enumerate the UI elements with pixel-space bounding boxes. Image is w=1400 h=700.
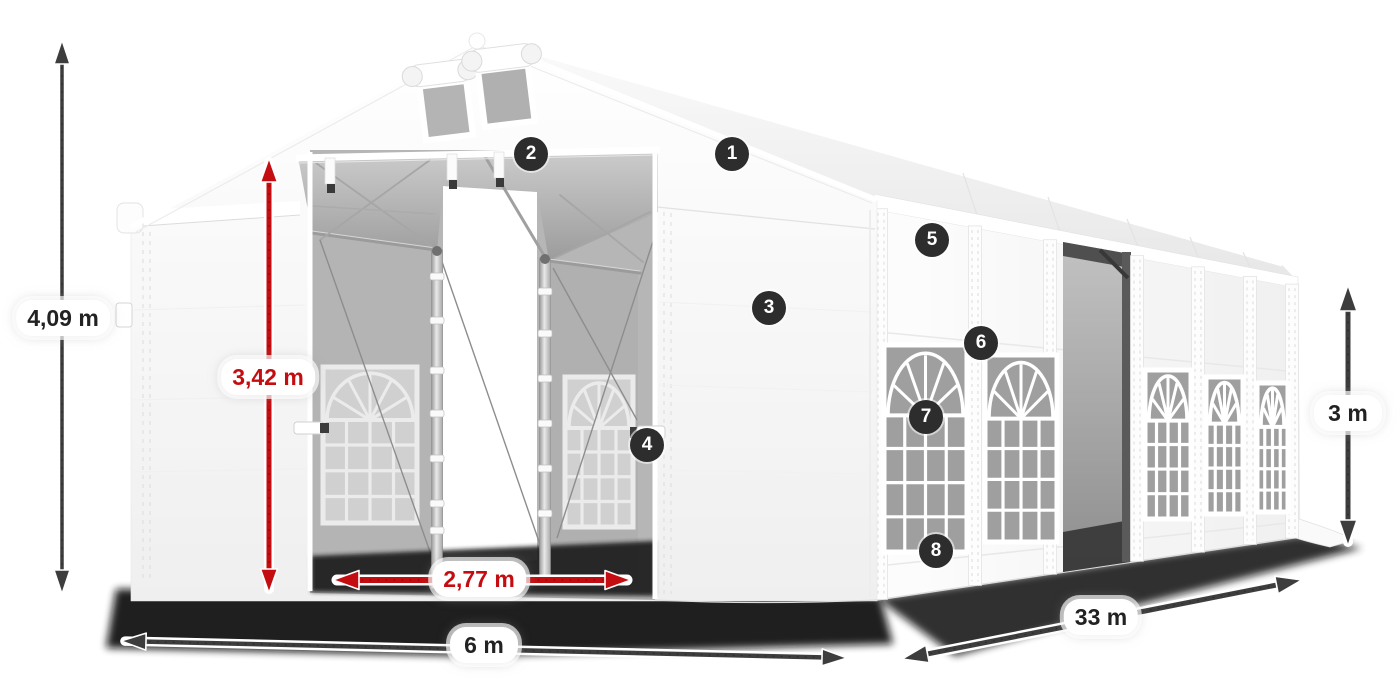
strap-buckle xyxy=(116,303,132,327)
side-door-opening xyxy=(1063,242,1131,572)
callout-badge-7: 7 xyxy=(909,400,943,434)
callout-badge-1: 1 xyxy=(715,137,749,171)
apex-cap xyxy=(469,33,485,49)
callout-badge-5: 5 xyxy=(915,223,949,257)
vent-window xyxy=(478,65,534,127)
dimension-label-length: 33 m xyxy=(1064,599,1138,635)
arched-window xyxy=(565,377,633,527)
dimension-label-entrance-width: 2,77 m xyxy=(432,561,526,597)
arched-window xyxy=(1257,383,1288,512)
through-view xyxy=(443,186,537,568)
door-frame-pole xyxy=(538,254,552,583)
door-tie xyxy=(294,422,329,434)
callout-badge-6: 6 xyxy=(964,326,998,360)
arched-window xyxy=(1206,377,1243,514)
door-pole xyxy=(1122,252,1131,562)
dimension-label-entrance-height: 3,42 m xyxy=(221,359,315,395)
dimension-label-width: 6 m xyxy=(450,627,518,663)
callout-badge-2: 2 xyxy=(514,137,548,171)
arched-window xyxy=(1145,370,1191,519)
callout-badge-3: 3 xyxy=(752,291,786,325)
tent-illustration xyxy=(0,0,1400,700)
callout-badge-4: 4 xyxy=(630,428,664,462)
vent-window xyxy=(420,81,473,140)
tent-dimensions-diagram: 4,09 m 3,42 m 2,77 m 6 m 33 m 3 m 1 2 3 … xyxy=(0,0,1400,700)
arched-window xyxy=(323,367,417,523)
callout-badge-8: 8 xyxy=(919,534,953,568)
door-frame-pole xyxy=(430,246,444,588)
arched-window xyxy=(985,355,1057,542)
front-opening xyxy=(294,150,665,600)
panel-strap xyxy=(1131,256,1144,562)
dimension-label-total-height: 4,09 m xyxy=(16,300,110,336)
dimension-label-side-height: 3 m xyxy=(1314,395,1382,431)
arched-window xyxy=(884,345,967,552)
panel-strap xyxy=(969,226,982,585)
eave-cap xyxy=(117,203,143,233)
